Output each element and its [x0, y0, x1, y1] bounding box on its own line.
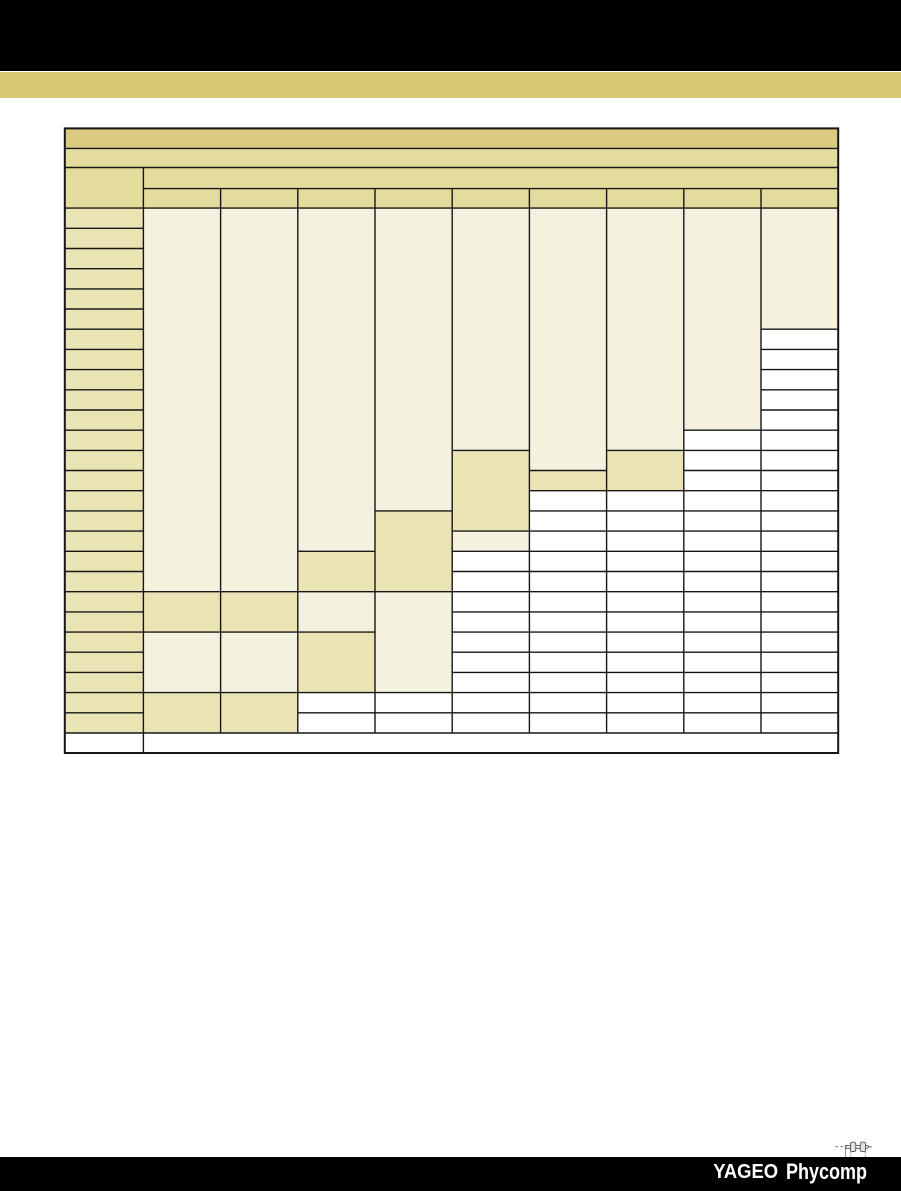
svg-text:YAGEO: YAGEO — [713, 1162, 778, 1184]
svg-text:Phycomp: Phycomp — [786, 1160, 867, 1184]
